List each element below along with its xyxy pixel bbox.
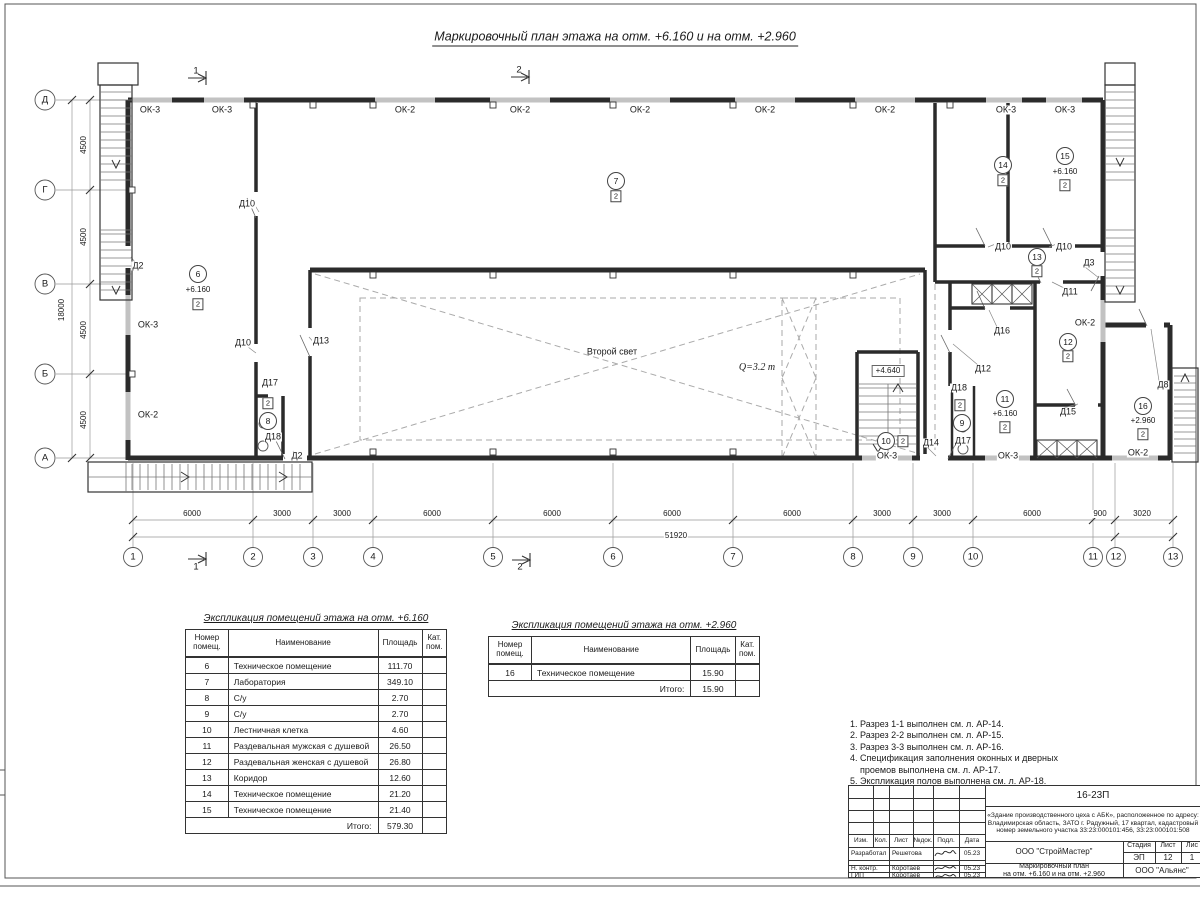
dimension-label: 4500: [80, 410, 88, 430]
table-cell: 21.40: [378, 802, 422, 818]
stamp-sheet-value: 12: [1155, 852, 1181, 863]
table-cell: С/у: [228, 690, 378, 706]
signature: [933, 864, 959, 872]
category-tag: 2: [262, 397, 273, 409]
stamp-name: Коротаев: [890, 872, 935, 878]
plan-text: Второй свет: [586, 348, 638, 357]
grid-bubble: 11: [1087, 552, 1099, 562]
table-cell: 7: [186, 674, 229, 690]
col-header-name: Наименование: [532, 637, 691, 665]
table-row: 8С/у2.70: [186, 690, 447, 706]
window-label: ОК-2: [629, 106, 651, 115]
window-label: ОК-2: [509, 106, 531, 115]
note-line: 4. Спецификация заполнения оконных и две…: [850, 753, 1180, 764]
table-cell: 9: [186, 706, 229, 722]
table-cell: Раздевальная женская с душевой: [228, 754, 378, 770]
stamp-role: Н. контр.: [849, 865, 891, 872]
room-bubble: 13: [1028, 248, 1046, 266]
room-schedule-2960-table: Номер помещ. Наименование Площадь Кат. п…: [488, 636, 760, 697]
window-label: ОК-3: [1054, 106, 1076, 115]
window-label: ОК-3: [995, 106, 1017, 115]
col-header-area: Площадь: [691, 637, 735, 665]
table-cell: 12: [186, 754, 229, 770]
stamp-date: 05.23: [959, 865, 985, 872]
window-label: ОК-2: [874, 106, 896, 115]
table-cell: 10: [186, 722, 229, 738]
col-header-area: Площадь: [378, 630, 422, 658]
stamp-date: 05.23: [959, 872, 985, 878]
table-cell: Техническое помещение: [532, 664, 691, 681]
grid-bubble: 6: [609, 552, 616, 562]
stamp-sheets-value: 1: [1181, 852, 1200, 863]
total-label: Итого:: [489, 681, 691, 697]
table-cell: [422, 770, 446, 786]
dimension-label: 4500: [80, 227, 88, 247]
door-label: Д2: [290, 452, 303, 461]
stamp-sheets-label: Лис: [1181, 841, 1200, 852]
table-row: 11Раздевальная мужская с душевой26.50: [186, 738, 447, 754]
room-schedule-6160: Экспликация помещений этажа на отм. +6.1…: [185, 613, 447, 834]
signature: [933, 872, 959, 878]
table-cell: [422, 674, 446, 690]
door-label: Д15: [1059, 408, 1077, 417]
table-cell: Раздевальная мужская с душевой: [228, 738, 378, 754]
door-label: Д13: [312, 337, 330, 346]
category-tag: 2: [954, 399, 965, 411]
dimension-label: 3000: [932, 510, 952, 518]
table-cell: 16: [489, 664, 532, 681]
door-label: Д18: [950, 384, 968, 393]
table-cell: Техническое помещение: [228, 786, 378, 802]
category-tag: 2: [997, 174, 1008, 186]
door-label: Д10: [234, 339, 252, 348]
stamp-client-org: ООО "Альянс": [1123, 863, 1200, 878]
room-schedule-2960-body: 16Техническое помещение15.90: [489, 664, 760, 681]
window-label: ОК-2: [137, 411, 159, 420]
stamp-stage-label: Стадия: [1123, 841, 1155, 852]
stamp-name: Коротаев: [890, 865, 935, 872]
table-cell: [422, 690, 446, 706]
table-cell: [422, 722, 446, 738]
section-mark: 1: [192, 66, 199, 76]
room-schedule-6160-table: Номер помещ. Наименование Площадь Кат. п…: [185, 629, 447, 834]
dimension-label: 3000: [272, 510, 292, 518]
stamp-col-podp: Подл.: [933, 834, 959, 847]
grid-bubble: В: [41, 279, 49, 289]
door-label: Д14: [922, 439, 940, 448]
category-tag: 2: [1062, 350, 1073, 362]
dimension-label: 3000: [872, 510, 892, 518]
col-header-number: Номер помещ.: [186, 630, 229, 658]
dimension-label: 3020: [1132, 510, 1152, 518]
grid-bubble: 3: [309, 552, 316, 562]
stamp-project-name: «Здание производственного цеха с АБК», р…: [987, 806, 1199, 841]
grid-bubble: Г: [41, 185, 48, 195]
category-tag: 2: [897, 435, 908, 447]
note-line: проемов выполнена см. л. АР-17.: [850, 765, 1180, 776]
door-label: Д8: [1156, 381, 1169, 390]
stamp-designer-org: ООО "СтройМастер": [985, 841, 1123, 863]
room-bubble: 8: [259, 412, 277, 430]
table-row: 13Коридор12.60: [186, 770, 447, 786]
category-tag: 2: [610, 190, 621, 202]
table-cell: 11: [186, 738, 229, 754]
col-header-cat: Кат. пом.: [735, 637, 759, 665]
general-notes: 1. Разрез 1-1 выполнен см. л. АР-14.2. Р…: [850, 719, 1180, 787]
plan-labels: ОК-3ОК-3ОК-2ОК-2ОК-2ОК-2ОК-2ОК-3ОК-3ОК-3…: [0, 0, 1200, 600]
room-bubble: 16: [1134, 397, 1152, 415]
room-schedule-6160-body: 6Техническое помещение111.707Лаборатория…: [186, 657, 447, 818]
dimension-label: 18000: [58, 298, 66, 322]
table-cell: 349.10: [378, 674, 422, 690]
category-tag: 2: [999, 421, 1010, 433]
stamp-role: ГИП: [849, 872, 891, 878]
category-tag: 2: [192, 298, 203, 310]
table-cell: [422, 657, 446, 674]
door-label: Д18: [264, 433, 282, 442]
table-cell: 15.90: [691, 664, 735, 681]
total-label: Итого:: [186, 818, 379, 834]
door-label: Д10: [994, 243, 1012, 252]
table-header-row: Номер помещ. Наименование Площадь Кат. п…: [186, 630, 447, 658]
grid-bubble: Б: [41, 369, 49, 379]
dimension-label: 6000: [182, 510, 202, 518]
table-cell: Лаборатория: [228, 674, 378, 690]
room-bubble: 11: [996, 390, 1014, 408]
table-cell: 111.70: [378, 657, 422, 674]
door-label: Д10: [1055, 243, 1073, 252]
room-bubble: 15: [1056, 147, 1074, 165]
grid-bubble: 5: [489, 552, 496, 562]
room-bubble: 6: [189, 265, 207, 283]
table-row: 7Лаборатория349.10: [186, 674, 447, 690]
note-line: 3. Разрез 3-3 выполнен см. л. АР-16.: [850, 742, 1180, 753]
stamp-col-list: Лист: [889, 834, 913, 847]
door-label: Д16: [993, 327, 1011, 336]
stamp-line: [849, 810, 985, 811]
window-label: ОК-3: [997, 452, 1019, 461]
table-cell: 2.70: [378, 706, 422, 722]
window-label: ОК-2: [1074, 319, 1096, 328]
table-row: 10Лестничная клетка4.60: [186, 722, 447, 738]
window-label: ОК-2: [394, 106, 416, 115]
dimension-label: 6000: [1022, 510, 1042, 518]
elevation-label: +4.640: [872, 365, 905, 377]
section-mark: 2: [515, 65, 522, 75]
room-schedule-2960-title: Экспликация помещений этажа на отм. +2.9…: [488, 620, 760, 631]
table-cell: 12.60: [378, 770, 422, 786]
room-bubble: 10: [877, 432, 895, 450]
table-header-row: Номер помещ. Наименование Площадь Кат. п…: [489, 637, 760, 665]
stamp-line: [849, 798, 985, 799]
table-row: 12Раздевальная женская с душевой26.80: [186, 754, 447, 770]
dimension-label: 6000: [782, 510, 802, 518]
table-cell: 13: [186, 770, 229, 786]
table-cell: [422, 802, 446, 818]
table-row: 6Техническое помещение111.70: [186, 657, 447, 674]
stamp-doc-number: 16-23П: [985, 786, 1200, 806]
grid-bubble: 8: [849, 552, 856, 562]
stamp-drawing-title-line2: на отм. +6.160 и на отм. +2.960: [985, 871, 1123, 878]
dimension-label: 4500: [80, 135, 88, 155]
dimension-label: 900: [1092, 510, 1107, 518]
note-line: 1. Разрез 1-1 выполнен см. л. АР-14.: [850, 719, 1180, 730]
category-tag: 2: [1059, 179, 1070, 191]
col-header-name: Наименование: [228, 630, 378, 658]
grid-bubble: А: [41, 453, 49, 463]
table-cell: Техническое помещение: [228, 657, 378, 674]
table-cell: [735, 664, 759, 681]
total-value: 579.30: [378, 818, 422, 834]
grid-bubble: 12: [1110, 552, 1123, 562]
stamp-col-ndok: №док.: [913, 834, 933, 847]
stamp-col-kol: Кол.: [873, 834, 889, 847]
room-bubble: 9: [953, 414, 971, 432]
table-row: 9С/у2.70: [186, 706, 447, 722]
grid-bubble: 9: [909, 552, 916, 562]
col-header-number: Номер помещ.: [489, 637, 532, 665]
grid-bubble: Д: [41, 95, 49, 105]
total-row: Итого: 579.30: [186, 818, 447, 834]
grid-bubble: 1: [129, 552, 136, 562]
stamp-line: [849, 822, 985, 823]
table-row: 16Техническое помещение15.90: [489, 664, 760, 681]
table-cell: 21.20: [378, 786, 422, 802]
dimension-label: 3000: [332, 510, 352, 518]
stamp-name: Решетова: [890, 847, 935, 860]
table-cell: 15: [186, 802, 229, 818]
grid-bubble: 7: [729, 552, 736, 562]
door-label: Д12: [974, 365, 992, 374]
table-cell: [422, 706, 446, 722]
table-cell: 2.70: [378, 690, 422, 706]
table-cell: 4.60: [378, 722, 422, 738]
grid-bubble: 2: [249, 552, 256, 562]
table-cell: [422, 738, 446, 754]
elevation-label: +6.160: [992, 410, 1019, 418]
stamp-col-data: Дата: [959, 834, 985, 847]
table-cell: Техническое помещение: [228, 802, 378, 818]
dimension-label: 4500: [80, 320, 88, 340]
dimension-label: 6000: [542, 510, 562, 518]
window-label: ОК-3: [137, 321, 159, 330]
table-cell: Коридор: [228, 770, 378, 786]
category-tag: 2: [1031, 265, 1042, 277]
note-line: 2. Разрез 2-2 выполнен см. л. АР-15.: [850, 730, 1180, 741]
stamp-col-izm: Изм.: [849, 834, 873, 847]
drawing-sheet: { "sheet": { "title": "Маркировочный пла…: [0, 0, 1200, 900]
title-block: Изм. Кол. Лист №док. Подл. Дата Разработ…: [848, 785, 1200, 878]
table-cell: 14: [186, 786, 229, 802]
table-cell: 26.80: [378, 754, 422, 770]
stamp-stage-value: ЭП: [1123, 852, 1155, 863]
table-cell: 6: [186, 657, 229, 674]
grid-bubble: 10: [967, 552, 980, 562]
section-mark: 1: [192, 562, 199, 572]
room-bubble: 7: [607, 172, 625, 190]
window-label: ОК-3: [139, 106, 161, 115]
table-cell: [422, 754, 446, 770]
category-tag: 2: [1137, 428, 1148, 440]
table-row: 15Техническое помещение21.40: [186, 802, 447, 818]
door-label: Д10: [238, 200, 256, 209]
window-label: ОК-3: [876, 452, 898, 461]
table-row: 14Техническое помещение21.20: [186, 786, 447, 802]
room-bubble: 14: [994, 156, 1012, 174]
total-row: Итого: 15.90: [489, 681, 760, 697]
signature: [933, 847, 959, 860]
table-cell: 8: [186, 690, 229, 706]
door-label: Д17: [954, 437, 972, 446]
window-label: ОК-2: [1127, 449, 1149, 458]
door-label: Д2: [131, 262, 144, 271]
elevation-label: +6.160: [1052, 168, 1079, 176]
stamp-line: [849, 860, 985, 861]
room-bubble: 12: [1059, 333, 1077, 351]
room-schedule-6160-title: Экспликация помещений этажа на отм. +6.1…: [185, 613, 447, 624]
stamp-drawing-title-line1: Маркировочный план: [985, 863, 1123, 871]
total-value: 15.90: [691, 681, 735, 697]
col-header-cat: Кат. пом.: [422, 630, 446, 658]
grid-bubble: 4: [369, 552, 376, 562]
dimension-label: 6000: [662, 510, 682, 518]
crane-capacity-label: Q=3.2 т: [738, 363, 776, 373]
door-label: Д17: [261, 379, 279, 388]
dimension-label: 51920: [664, 532, 688, 540]
elevation-label: +6.160: [185, 286, 212, 294]
section-mark: 2: [516, 562, 523, 572]
door-label: Д3: [1082, 259, 1095, 268]
elevation-label: +2.960: [1130, 417, 1157, 425]
stamp-role: Разработал: [849, 847, 891, 860]
stamp-date: 05.23: [959, 847, 985, 860]
door-label: Д11: [1061, 288, 1078, 297]
window-label: ОК-3: [211, 106, 233, 115]
drawing-title: Маркировочный план этажа на отм. +6.160 …: [432, 30, 798, 47]
table-cell: [422, 786, 446, 802]
grid-bubble: 13: [1167, 552, 1180, 562]
stamp-sheet-label: Лист: [1155, 841, 1181, 852]
table-cell: 26.50: [378, 738, 422, 754]
room-schedule-2960: Экспликация помещений этажа на отм. +2.9…: [488, 620, 760, 697]
table-cell: Лестничная клетка: [228, 722, 378, 738]
table-cell: С/у: [228, 706, 378, 722]
window-label: ОК-2: [754, 106, 776, 115]
dimension-label: 6000: [422, 510, 442, 518]
